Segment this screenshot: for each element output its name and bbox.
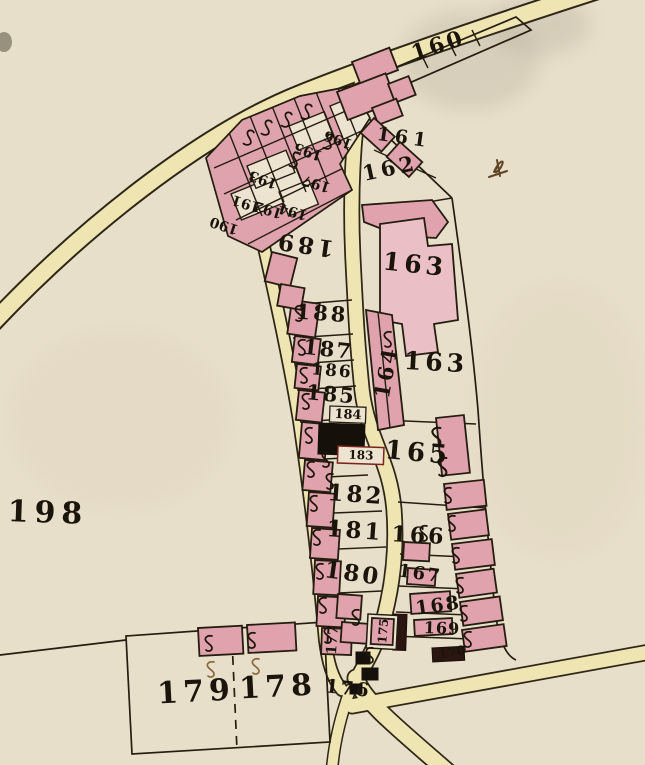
stain [10, 330, 230, 510]
plot-label-165: 165 [384, 435, 453, 471]
map-viewport[interactable]: 160 161 162 163 163 164 165 166 167 168 … [0, 0, 645, 765]
stain [470, 280, 645, 560]
plot-label-184: 184 [334, 407, 362, 423]
plot-label-163-lower: 163 [403, 346, 469, 378]
plot-label-183: 183 [348, 448, 374, 463]
map-canvas: 160 161 162 163 163 164 165 166 167 168 … [0, 0, 645, 765]
building [198, 626, 243, 656]
building [448, 509, 489, 539]
plot-label-166: 166 [391, 521, 447, 550]
plot-label-187: 187 [302, 334, 354, 364]
plot-label-169: 169 [423, 618, 460, 638]
building [336, 594, 362, 620]
plot-label-182: 182 [327, 479, 386, 510]
plot-label-178: 178 [238, 667, 317, 706]
plot-label-177: 177 [324, 625, 342, 655]
building [362, 668, 378, 680]
building [444, 480, 486, 510]
plot-label-181: 181 [326, 515, 385, 546]
building [456, 569, 497, 598]
building [460, 596, 503, 625]
plot-label-198: 198 [7, 494, 89, 532]
plot-label-188: 188 [295, 299, 349, 328]
building [452, 539, 495, 570]
plot-label-175: 175 [375, 618, 391, 644]
plot-label-185: 185 [305, 379, 357, 408]
building [247, 622, 296, 652]
plot-label-179: 179 [156, 672, 235, 711]
